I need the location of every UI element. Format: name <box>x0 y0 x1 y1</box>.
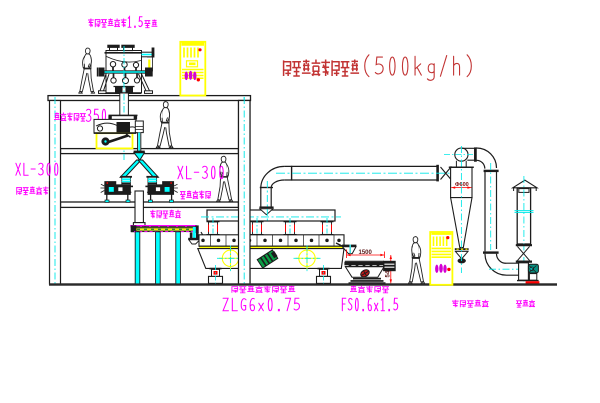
svg-text:Φ600: Φ600 <box>455 182 469 188</box>
svg-text:1500: 1500 <box>359 250 373 256</box>
